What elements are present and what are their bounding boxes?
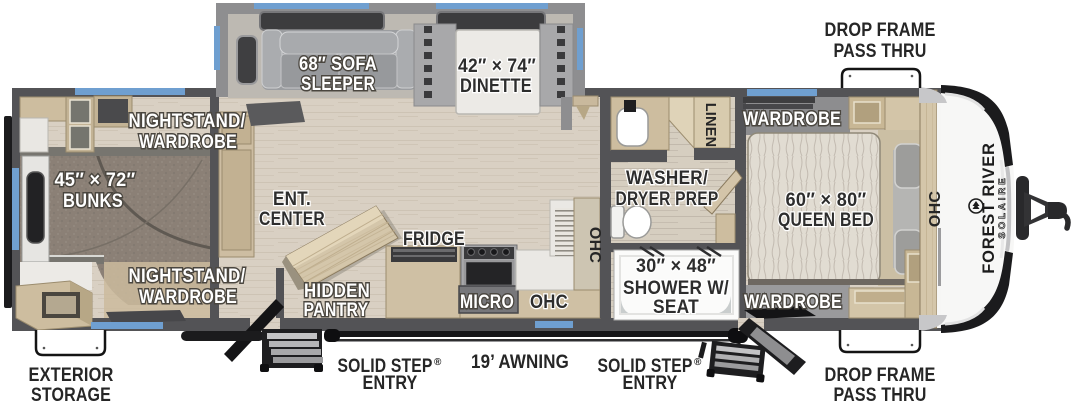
svg-text:LINEN: LINEN bbox=[702, 103, 718, 148]
svg-text:WASHER/: WASHER/ bbox=[626, 168, 708, 189]
svg-text:DROP FRAME: DROP FRAME bbox=[825, 364, 936, 386]
svg-text:30″ × 48″: 30″ × 48″ bbox=[636, 256, 716, 277]
svg-text:DROP FRAME: DROP FRAME bbox=[825, 19, 936, 41]
svg-text:NIGHTSTAND/: NIGHTSTAND/ bbox=[129, 111, 246, 132]
svg-text:ENT.: ENT. bbox=[273, 189, 311, 210]
svg-text:PASS THRU: PASS THRU bbox=[834, 384, 927, 406]
svg-text:19’ AWNING: 19’ AWNING bbox=[471, 351, 569, 373]
svg-text:BUNKS: BUNKS bbox=[63, 191, 123, 212]
svg-text:DINETTE: DINETTE bbox=[460, 76, 532, 97]
svg-text:68″ SOFA: 68″ SOFA bbox=[299, 54, 377, 75]
svg-text:60″ × 80″: 60″ × 80″ bbox=[786, 190, 867, 211]
svg-text:42″ × 74″: 42″ × 74″ bbox=[458, 56, 536, 77]
svg-text:FRIDGE: FRIDGE bbox=[403, 229, 465, 250]
svg-text:SHOWER W/: SHOWER W/ bbox=[623, 278, 729, 299]
svg-text:OHC: OHC bbox=[927, 191, 944, 227]
svg-text:NIGHTSTAND/: NIGHTSTAND/ bbox=[129, 266, 246, 287]
svg-text:ENTRY: ENTRY bbox=[623, 372, 678, 394]
svg-text:PANTRY: PANTRY bbox=[304, 300, 369, 321]
svg-text:MICRO: MICRO bbox=[460, 292, 514, 313]
svg-text:QUEEN BED: QUEEN BED bbox=[778, 210, 874, 231]
svg-text:SOLAIRE: SOLAIRE bbox=[997, 175, 1008, 238]
svg-text:SEAT: SEAT bbox=[653, 297, 699, 318]
svg-text:OHC: OHC bbox=[586, 227, 603, 263]
svg-text:®: ® bbox=[694, 357, 702, 368]
svg-text:EXTERIOR: EXTERIOR bbox=[29, 364, 114, 386]
svg-text:®: ® bbox=[434, 357, 442, 368]
svg-text:45″ × 72″: 45″ × 72″ bbox=[55, 170, 136, 191]
svg-text:HIDDEN: HIDDEN bbox=[304, 281, 370, 302]
svg-text:SLEEPER: SLEEPER bbox=[301, 74, 375, 95]
svg-text:WARDROBE: WARDROBE bbox=[744, 292, 842, 313]
svg-text:CENTER: CENTER bbox=[259, 209, 325, 230]
svg-text:WARDROBE: WARDROBE bbox=[743, 109, 841, 130]
svg-text:OHC: OHC bbox=[530, 292, 568, 313]
svg-text:DRYER PREP: DRYER PREP bbox=[616, 189, 719, 210]
svg-text:PASS THRU: PASS THRU bbox=[834, 40, 927, 62]
svg-text:WARDROBE: WARDROBE bbox=[139, 287, 237, 308]
svg-text:STORAGE: STORAGE bbox=[31, 384, 111, 406]
svg-text:ENTRY: ENTRY bbox=[363, 372, 418, 394]
svg-text:WARDROBE: WARDROBE bbox=[139, 132, 237, 153]
